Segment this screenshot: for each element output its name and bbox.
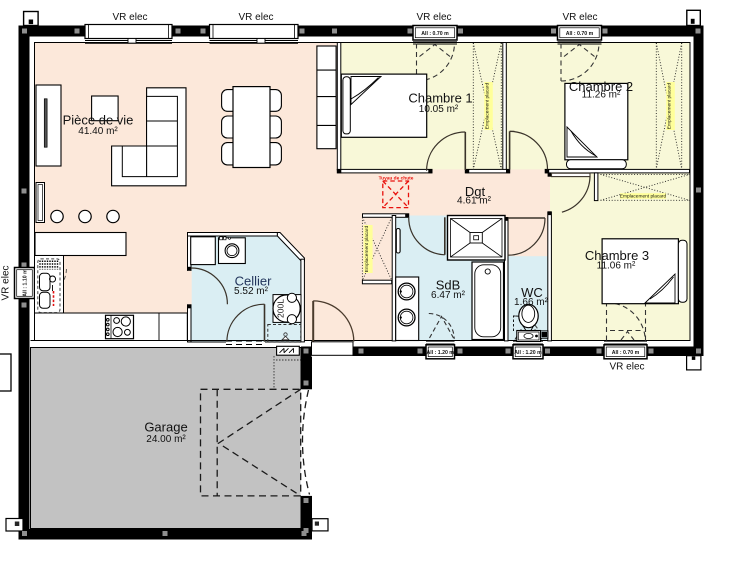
svg-text:Emplacement placard: Emplacement placard — [667, 82, 673, 129]
svg-text:Emplacement placard: Emplacement placard — [364, 225, 370, 272]
svg-text:All : 1.20 m: All : 1.20 m — [427, 350, 455, 356]
svg-text:VR elec: VR elec — [1, 265, 12, 300]
svg-text:Garage: Garage — [144, 420, 187, 435]
svg-text:41.40 m²: 41.40 m² — [78, 126, 118, 137]
svg-text:All : 0.70 m: All : 0.70 m — [612, 350, 640, 356]
svg-text:1.66 m²: 1.66 m² — [514, 297, 549, 308]
svg-text:VR elec: VR elec — [238, 12, 273, 23]
svg-text:11.26 m²: 11.26 m² — [582, 90, 621, 101]
svg-text:VR elec: VR elec — [112, 12, 147, 23]
svg-text:Tuyau de chute: Tuyau de chute — [379, 176, 414, 182]
svg-text:All : 1.10 m: All : 1.10 m — [23, 269, 29, 297]
svg-text:5.52 m²: 5.52 m² — [234, 286, 269, 297]
svg-text:VR elec: VR elec — [609, 362, 644, 373]
svg-text:VR elec: VR elec — [562, 12, 597, 23]
svg-text:6.47 m²: 6.47 m² — [431, 290, 466, 301]
svg-text:Emplacement placard: Emplacement placard — [620, 194, 667, 200]
svg-text:VR elec: VR elec — [416, 12, 451, 23]
svg-text:All : 0.70 m: All : 0.70 m — [421, 31, 449, 37]
svg-text:Emplacement placard: Emplacement placard — [485, 82, 491, 129]
svg-text:10.05 m²: 10.05 m² — [419, 104, 459, 115]
svg-text:200L: 200L — [276, 299, 286, 318]
svg-text:24.00 m²: 24.00 m² — [146, 434, 186, 445]
svg-text:All : 0.70 m: All : 0.70 m — [566, 31, 594, 37]
svg-text:All : 1.20 m: All : 1.20 m — [514, 350, 542, 356]
svg-text:11.06 m²: 11.06 m² — [597, 261, 636, 272]
svg-text:4.61 m²: 4.61 m² — [457, 196, 492, 207]
